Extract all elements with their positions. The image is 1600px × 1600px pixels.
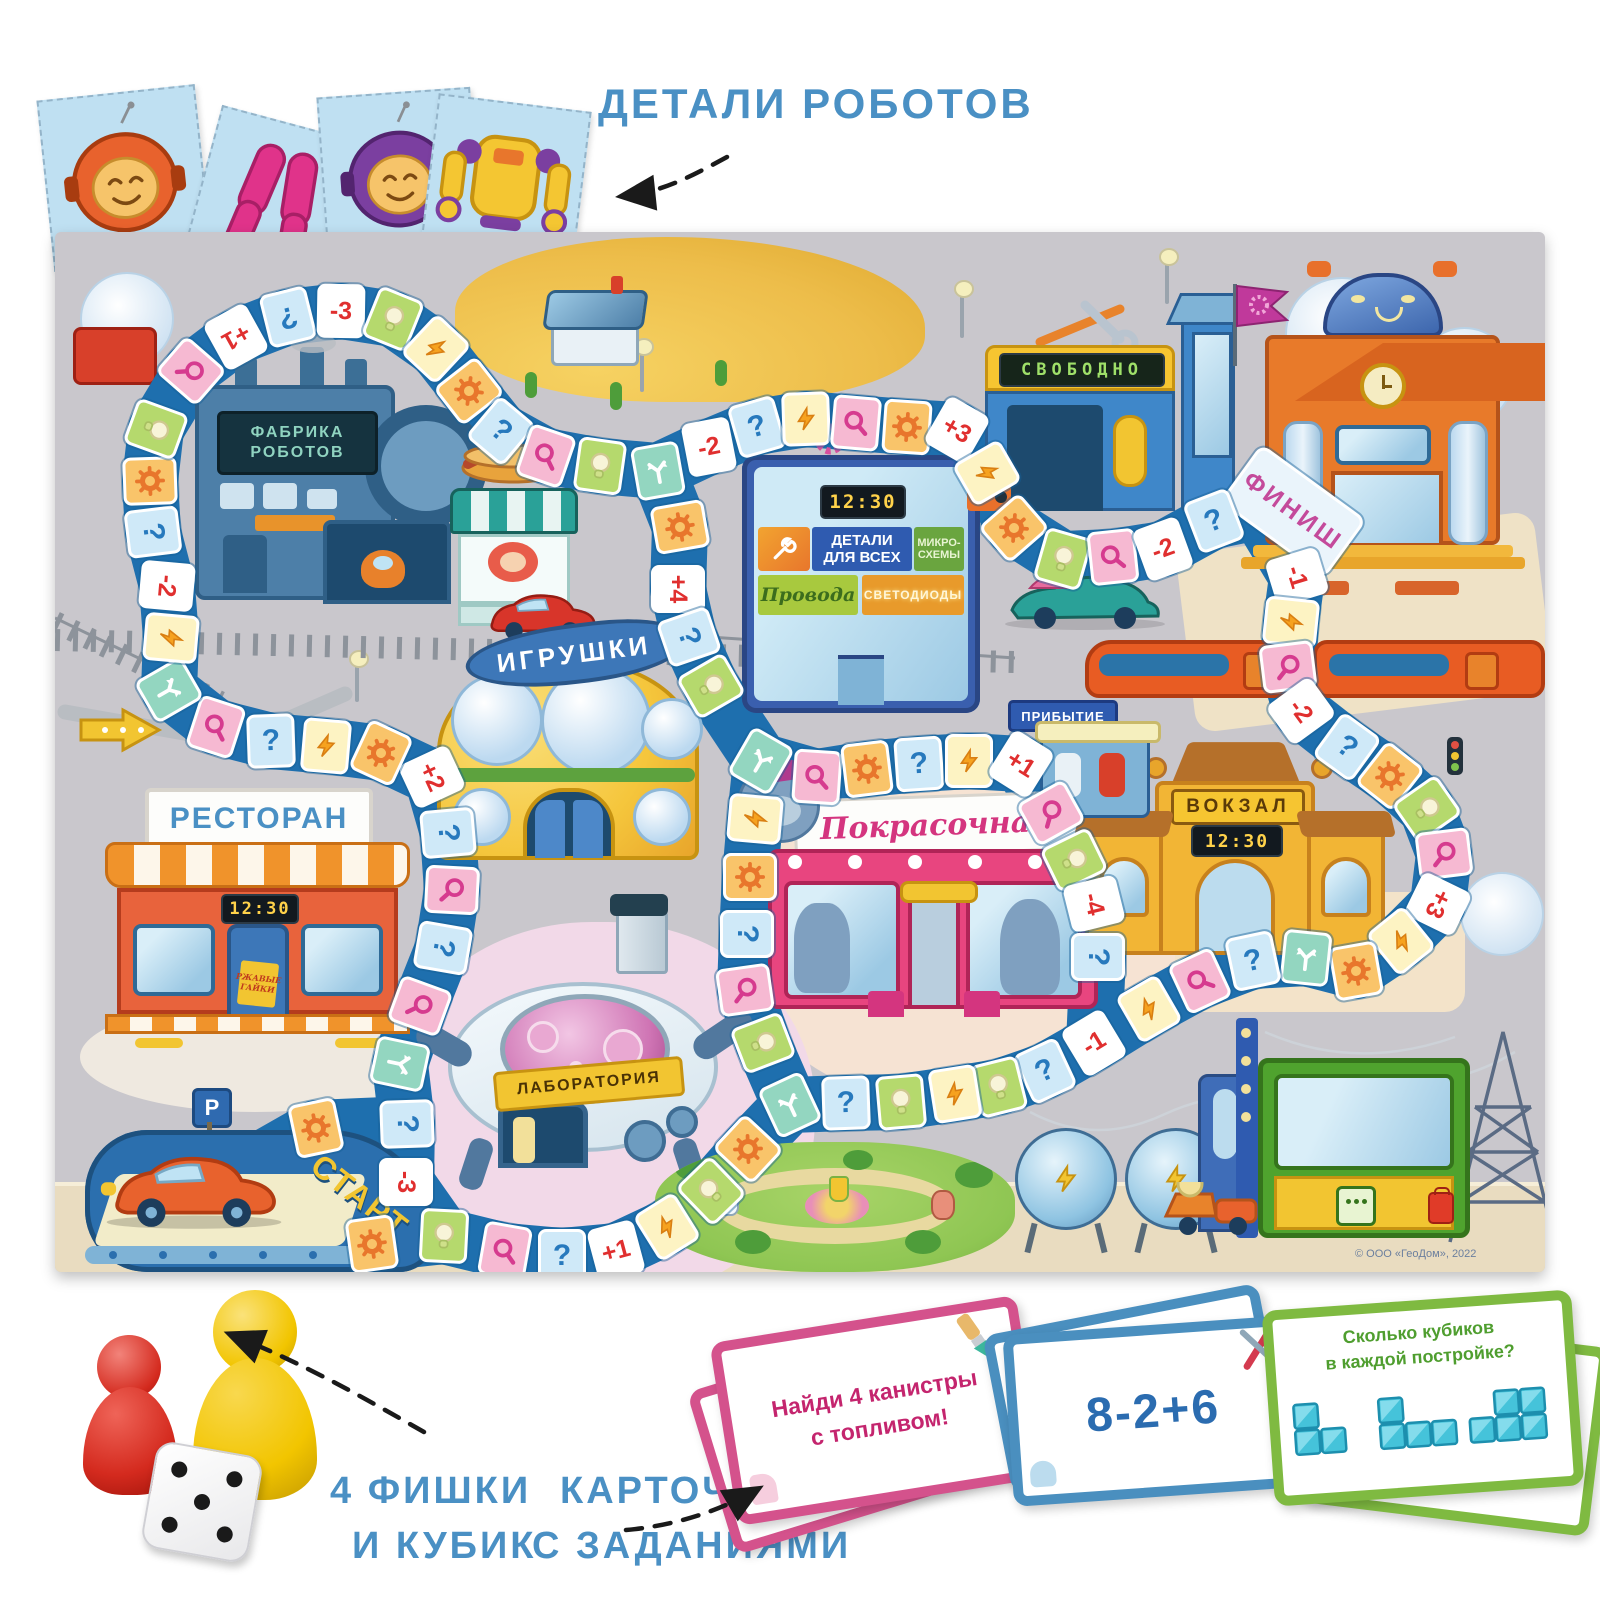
question-icon: ? — [427, 936, 460, 959]
board-space — [830, 394, 883, 452]
board-space: ? — [1071, 933, 1125, 981]
question-icon: ? — [909, 748, 929, 779]
magnifier-icon — [1271, 650, 1304, 683]
board-space: ? — [1224, 930, 1282, 993]
gear-icon — [134, 465, 165, 496]
gear-icon — [361, 733, 401, 773]
board-space: ? — [1182, 487, 1246, 555]
question-icon: ? — [1241, 944, 1265, 977]
board-space — [927, 1064, 983, 1125]
board-space: ? — [538, 1229, 586, 1272]
lightbulb-icon — [1045, 541, 1080, 578]
copyright: © ООО «ГеоДом», 2022 — [1355, 1248, 1476, 1260]
lightning-icon — [1130, 990, 1168, 1029]
question-icon: ? — [744, 410, 770, 444]
board-space — [424, 865, 480, 916]
board-space — [727, 726, 796, 797]
lightning-icon — [1275, 608, 1308, 637]
question-icon: ? — [836, 1088, 855, 1119]
question-icon: ? — [1030, 1054, 1059, 1089]
lightning-icon — [968, 454, 1007, 492]
board-space-number: -2 — [680, 416, 737, 478]
board-space-number: +2 — [397, 744, 466, 810]
game-board: ФАБРИКАРОБОТОВ 12:30 ДЕТАЛИДЛЯ ВСЕХ МИКР… — [55, 232, 1545, 1272]
question-icon: ? — [732, 925, 762, 943]
board-space — [729, 1011, 797, 1075]
board-space-number: +1 — [586, 1219, 646, 1272]
board-space: ? — [258, 285, 318, 349]
question-icon: ? — [1331, 729, 1363, 764]
lightbulb-icon — [691, 666, 731, 705]
board-space-number: -3 — [379, 1158, 433, 1206]
junction-arrows-icon — [641, 454, 676, 489]
board-space — [386, 974, 453, 1038]
board-space — [781, 391, 831, 447]
board-space — [1086, 528, 1139, 587]
board-space — [142, 612, 200, 665]
question-icon: ? — [261, 726, 280, 757]
board-space — [572, 436, 627, 496]
board-space — [1262, 595, 1321, 648]
board-space — [757, 1070, 823, 1139]
lightning-icon — [312, 730, 341, 762]
question-icon: ? — [1200, 504, 1228, 539]
board-space-number: -2 — [1131, 515, 1195, 582]
lightning-icon — [155, 624, 187, 653]
board-space — [1032, 526, 1093, 591]
board-space: ? — [821, 1075, 871, 1131]
board-space: ? — [419, 807, 477, 860]
magnifier-icon — [1427, 837, 1460, 870]
question-icon: ? — [137, 521, 169, 543]
magnifier-icon — [1097, 541, 1130, 574]
board-space: ? — [893, 735, 945, 792]
board-space — [649, 499, 711, 556]
lightning-icon — [940, 1077, 970, 1111]
gear-icon — [727, 1128, 769, 1170]
board-space — [122, 456, 178, 506]
gear-icon — [1339, 954, 1374, 989]
lightbulb-icon — [374, 300, 411, 338]
board-space — [715, 962, 775, 1017]
board-space — [945, 734, 993, 788]
magnifier-icon — [1180, 961, 1220, 1001]
lightbulb-icon — [1054, 841, 1093, 879]
question-icon: ? — [1083, 948, 1113, 966]
lightbulb-icon — [744, 1025, 782, 1062]
board-space — [723, 853, 777, 901]
gear-icon — [735, 862, 765, 892]
board-space — [791, 748, 843, 805]
board-space: ? — [379, 1099, 435, 1149]
magnifier-icon — [197, 708, 235, 746]
lightbulb-icon — [584, 449, 616, 483]
gear-icon — [891, 411, 923, 443]
caption-pieces-line2: И КУБИК — [352, 1525, 536, 1568]
caption-pieces-line1: 4 ФИШКИ — [330, 1470, 531, 1513]
board-space: ? — [123, 505, 182, 559]
lightbulb-icon — [137, 411, 175, 448]
gear-icon — [355, 1227, 389, 1261]
magnifier-icon — [801, 761, 833, 793]
magnifier-icon — [170, 350, 212, 392]
board-space — [477, 1220, 534, 1272]
board-space: ? — [412, 920, 474, 977]
board-space — [185, 694, 247, 760]
board-space — [419, 1208, 470, 1264]
junction-arrows-icon — [741, 741, 782, 782]
track-spaces-layer: ???+2?-2?+1?-3?-2?+3-2?-1-2?+3?-1??+1?-3… — [55, 232, 1545, 1272]
task-card-green: Сколько кубиков в каждой постройке? — [1262, 1289, 1585, 1506]
task-card-blue: 8-2+6 — [1002, 1315, 1303, 1507]
board-space — [630, 440, 687, 502]
question-icon: ? — [484, 414, 517, 449]
lightbulb-icon — [886, 1086, 917, 1118]
question-icon: ? — [672, 623, 706, 650]
lightning-icon — [792, 404, 819, 435]
lightning-icon — [956, 746, 982, 776]
board-space — [840, 739, 894, 798]
die — [139, 1439, 264, 1564]
board-space — [300, 717, 353, 775]
gear-icon — [448, 370, 490, 412]
gear-icon — [850, 752, 883, 785]
magnifier-icon — [401, 987, 439, 1025]
board-space: ? — [726, 394, 787, 459]
task-card-pink: Найди 4 канистры с топливом! — [709, 1295, 1044, 1526]
board-space — [287, 1097, 345, 1160]
cube-clusters-icon — [1282, 1366, 1568, 1485]
lightbulb-icon — [429, 1220, 459, 1251]
magnifier-icon — [436, 874, 468, 906]
board-space-number: +4 — [651, 565, 705, 613]
board-space — [726, 793, 784, 846]
board-space: ? — [720, 910, 774, 958]
lightbulb-icon — [691, 1170, 732, 1211]
lightning-icon — [739, 805, 771, 834]
question-icon: ? — [432, 823, 463, 844]
magnifier-icon — [488, 1234, 523, 1269]
junction-arrows-icon — [382, 1046, 418, 1082]
board-space — [1328, 940, 1385, 1002]
question-icon: ? — [392, 1114, 423, 1133]
lightning-icon — [416, 329, 455, 369]
lightbulb-icon — [1407, 789, 1448, 829]
magnifier-icon — [527, 437, 565, 475]
question-icon: ? — [553, 1241, 571, 1271]
page-title: ДЕТАЛИ РОБОТОВ — [598, 80, 1034, 128]
board-space — [1279, 929, 1332, 988]
question-icon: ? — [275, 300, 300, 334]
board-space-number: -2 — [138, 560, 196, 613]
board-space — [1167, 946, 1233, 1015]
board-space-number: -3 — [317, 284, 366, 339]
board-space — [122, 397, 189, 461]
board-space — [1115, 974, 1184, 1045]
lightning-icon — [1381, 921, 1420, 961]
board-space — [881, 398, 933, 455]
lightning-icon — [648, 1207, 686, 1246]
junction-arrows-icon — [1290, 942, 1323, 975]
board-space — [344, 1214, 399, 1272]
junction-arrows-icon — [770, 1085, 810, 1125]
board-space — [369, 1035, 432, 1093]
magnifier-icon — [728, 973, 762, 1007]
junction-arrows-icon — [149, 670, 190, 711]
board-space: ? — [246, 713, 296, 769]
gear-icon — [993, 507, 1035, 549]
magnifier-icon — [1031, 793, 1072, 834]
gear-icon — [1369, 755, 1411, 797]
magnifier-icon — [840, 407, 873, 440]
gear-icon — [298, 1110, 334, 1146]
board-space — [875, 1073, 928, 1131]
gear-icon — [663, 510, 698, 545]
lightbulb-icon — [982, 1069, 1016, 1105]
